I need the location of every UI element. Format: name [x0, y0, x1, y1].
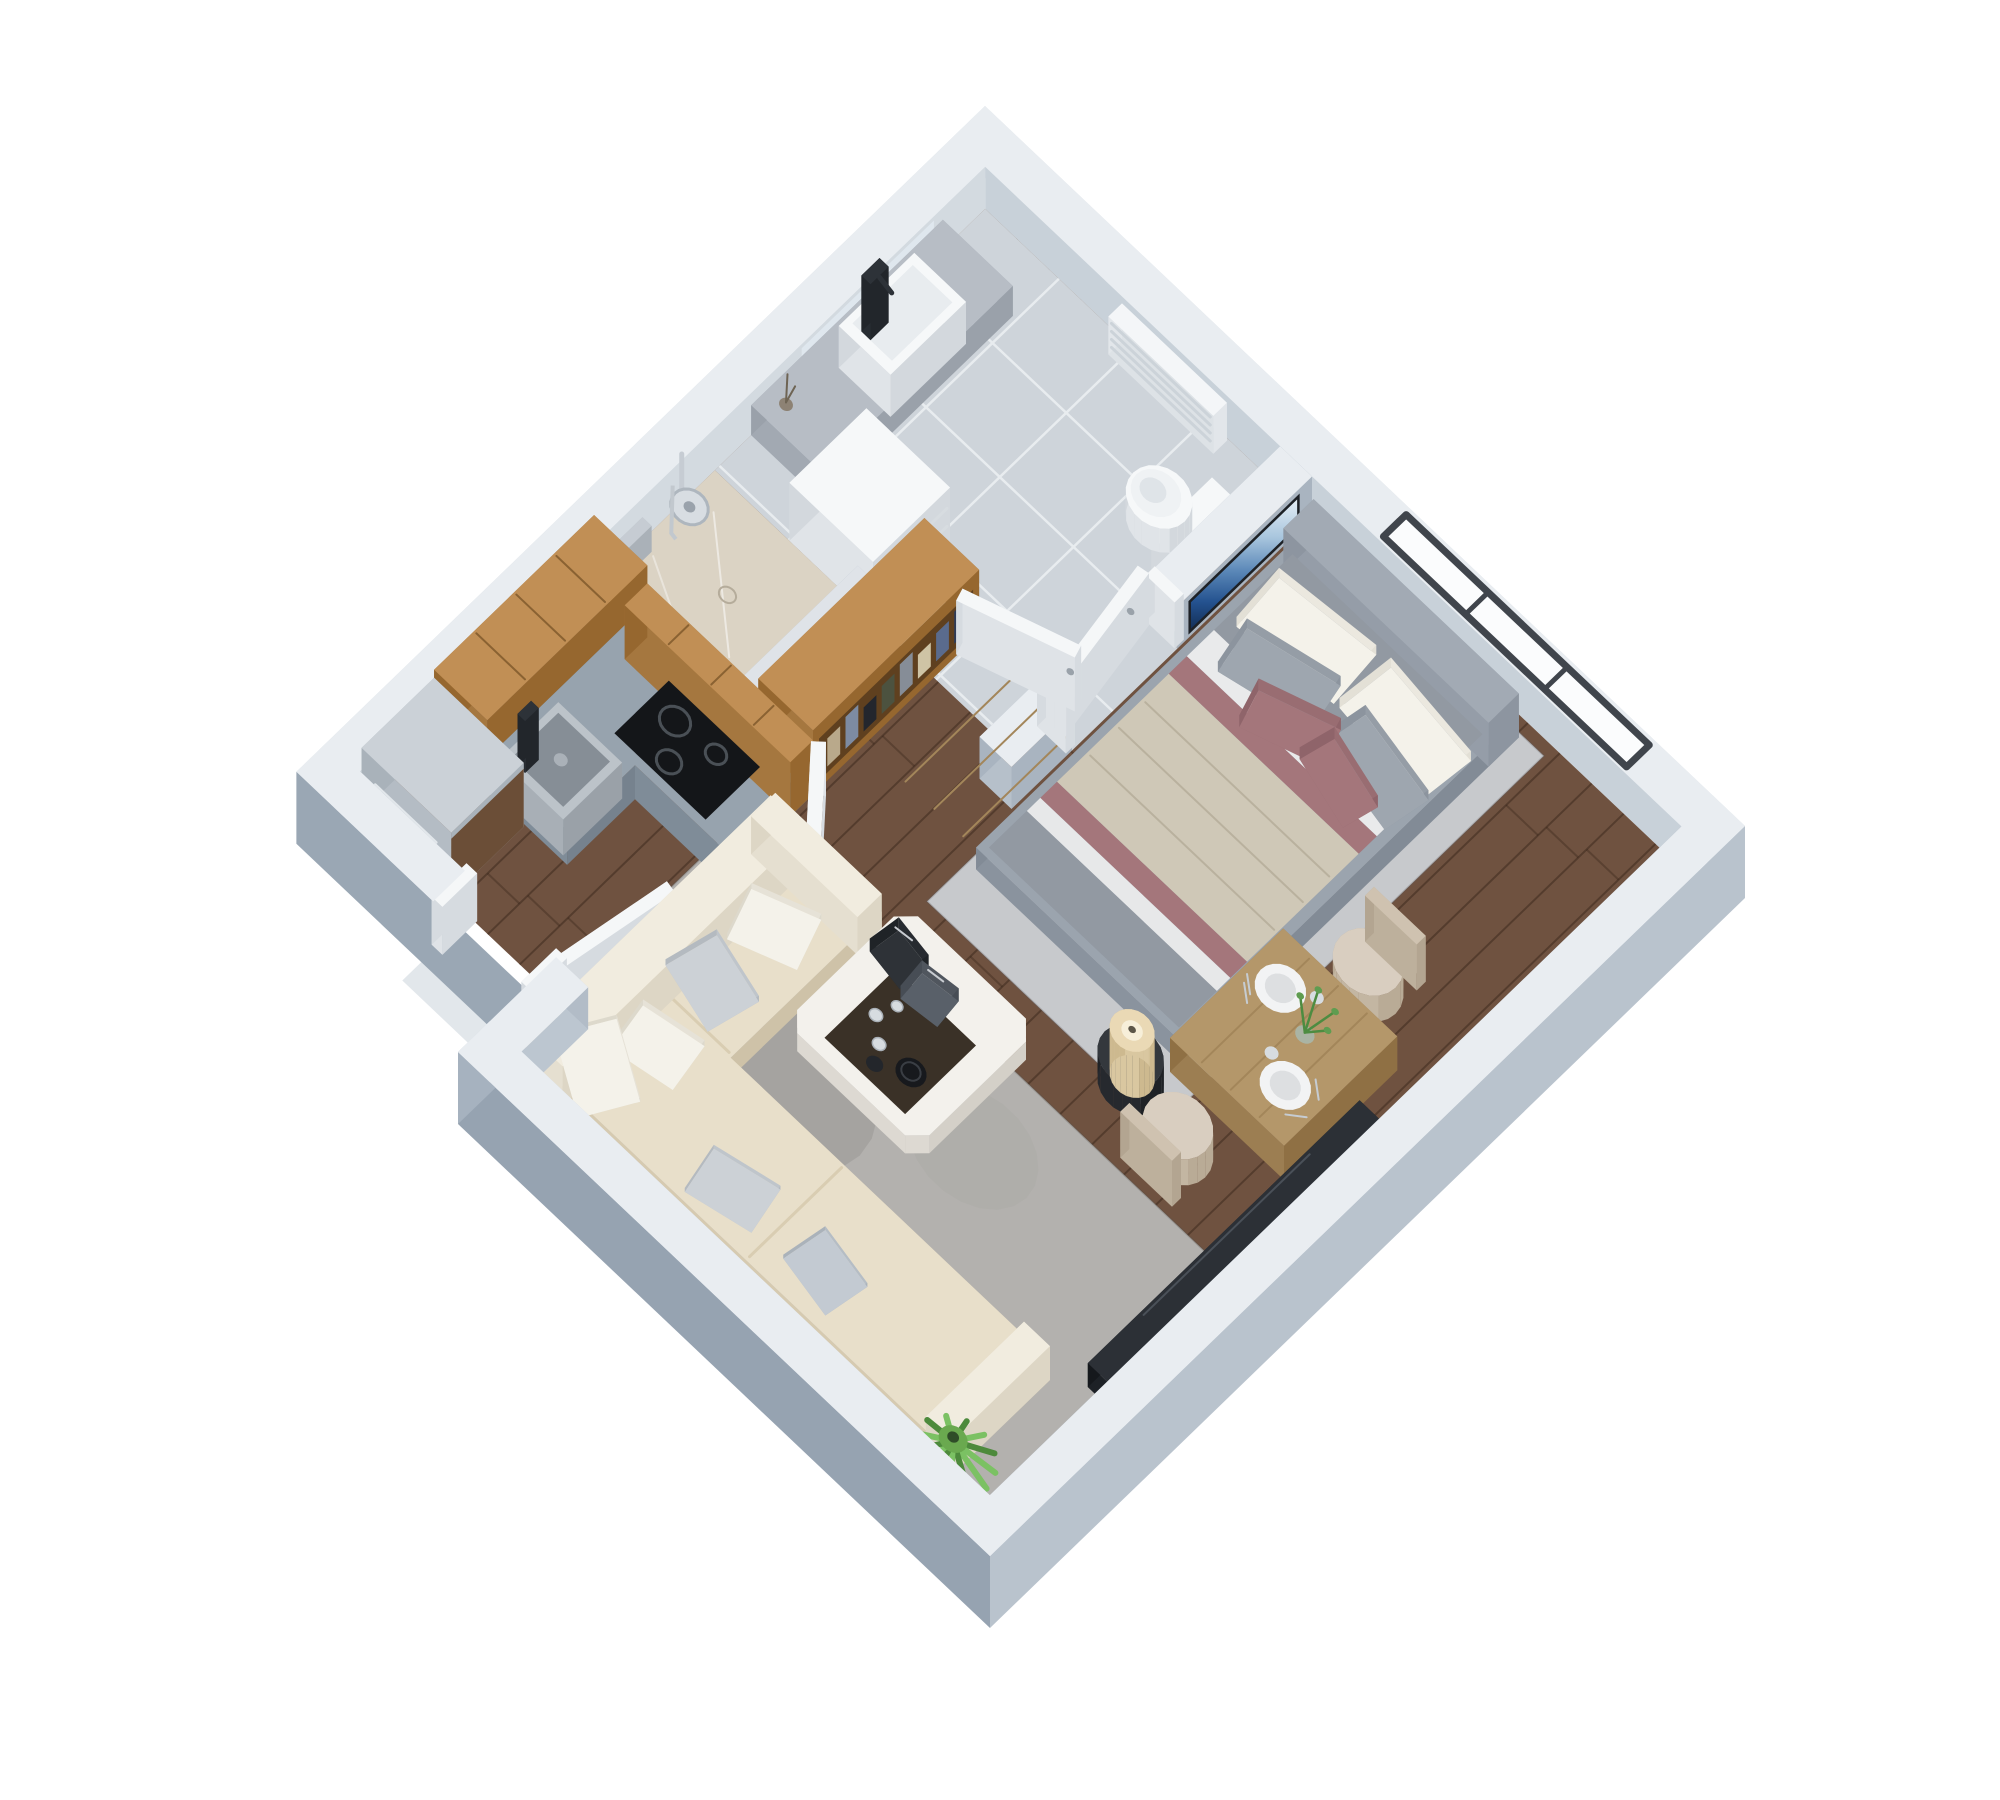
- floorplan-3d-render: [0, 0, 2000, 1800]
- floorplan-svg: [0, 0, 2000, 1800]
